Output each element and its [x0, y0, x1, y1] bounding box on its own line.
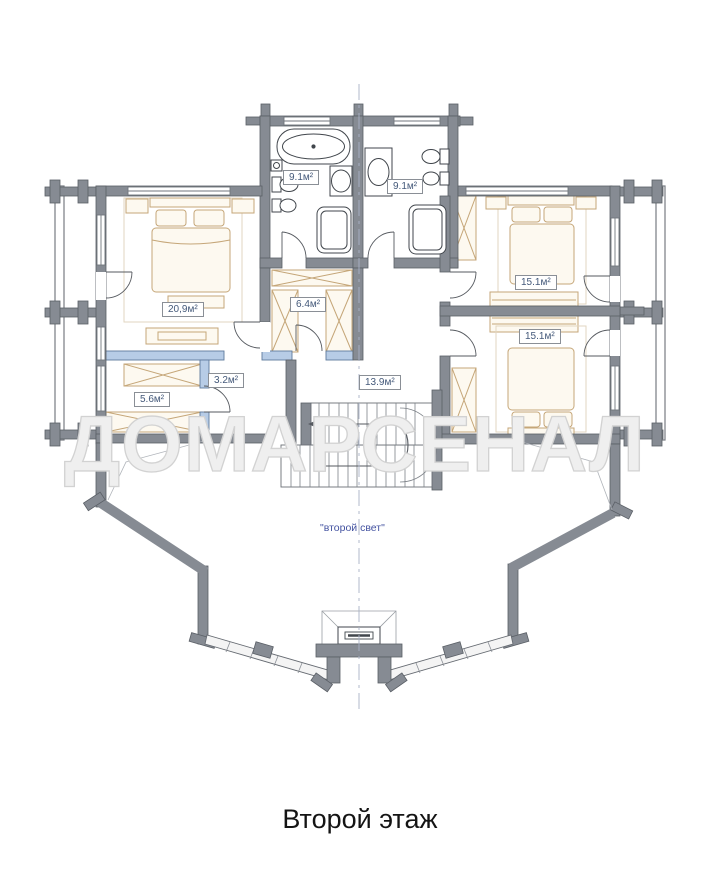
watermark: ДОМАРСЕНАЛ: [64, 398, 646, 490]
nightstand: [576, 197, 596, 209]
room-label-storage-room: 3.2м²: [208, 373, 244, 388]
room-label-bedroom-right-upper: 15.1м²: [515, 275, 557, 290]
bed: [152, 228, 230, 292]
room-label-bathroom-left: 9.1м²: [283, 170, 319, 185]
room-label-wardrobe-room: 6.4м²: [290, 297, 326, 312]
nightstand: [126, 199, 148, 213]
pillow: [194, 210, 224, 226]
floor-plan-page: 9.1м² 9.1м² 20,9м² 15.1м² 15.1м² 6.4м² 3…: [0, 0, 720, 885]
room-label-bedroom-right-lower: 15.1м²: [519, 329, 561, 344]
toilet: [440, 149, 449, 164]
room-label-bedroom-left: 20,9м²: [162, 302, 204, 317]
room-label-hall: 13.9м²: [359, 375, 401, 390]
pillow: [156, 210, 186, 226]
nightstand: [486, 197, 506, 209]
pillow: [544, 207, 572, 222]
bidet: [440, 172, 449, 185]
second-light-annotation: "второй свет": [320, 522, 385, 534]
pillow: [512, 207, 540, 222]
nightstand: [232, 199, 254, 213]
room-label-bathroom-right: 9.1м²: [387, 179, 423, 194]
page-title: Второй этаж: [0, 804, 720, 835]
headboard: [508, 196, 574, 205]
room-label-dressing-room: 5.6м²: [134, 392, 170, 407]
headboard: [150, 198, 230, 207]
